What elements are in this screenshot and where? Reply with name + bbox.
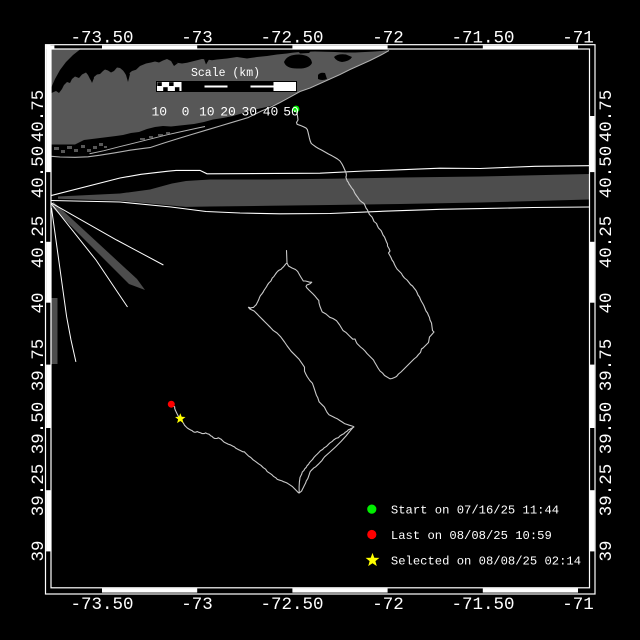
svg-text:20: 20: [220, 105, 236, 120]
svg-text:40: 40: [597, 292, 617, 313]
svg-text:39.50: 39.50: [597, 402, 617, 455]
svg-text:-71.50: -71.50: [451, 595, 514, 615]
svg-text:0: 0: [182, 105, 190, 120]
svg-text:-71: -71: [562, 29, 594, 49]
svg-text:-73: -73: [181, 595, 213, 615]
svg-text:39.50: 39.50: [29, 402, 49, 455]
svg-text:40.75: 40.75: [29, 90, 49, 143]
svg-text:-72: -72: [372, 595, 404, 615]
svg-text:-73.50: -73.50: [70, 595, 133, 615]
svg-text:39.25: 39.25: [597, 464, 617, 517]
svg-text:-71: -71: [562, 595, 594, 615]
svg-text:50: 50: [283, 105, 299, 120]
svg-text:10: 10: [199, 105, 215, 120]
svg-text:39: 39: [29, 540, 49, 561]
svg-text:40: 40: [29, 292, 49, 313]
svg-text:39: 39: [597, 540, 617, 561]
svg-text:-72: -72: [372, 29, 404, 49]
svg-text:-72.50: -72.50: [260, 595, 323, 615]
svg-text:39.75: 39.75: [29, 339, 49, 392]
svg-text:10: 10: [151, 105, 167, 120]
svg-text:39.25: 39.25: [29, 464, 49, 517]
svg-text:-73: -73: [181, 29, 213, 49]
svg-text:40.25: 40.25: [597, 216, 617, 269]
svg-text:39.75: 39.75: [597, 339, 617, 392]
svg-text:Start on 07/16/25 11:44: Start on 07/16/25 11:44: [391, 504, 559, 518]
svg-text:-72.50: -72.50: [260, 29, 323, 49]
svg-text:40.50: 40.50: [29, 146, 49, 199]
svg-text:-71.50: -71.50: [451, 29, 514, 49]
svg-text:Selected on 08/08/25 02:14: Selected on 08/08/25 02:14: [391, 554, 581, 568]
svg-text:Scale (km): Scale (km): [191, 67, 260, 80]
svg-text:30: 30: [241, 105, 257, 120]
svg-text:40.75: 40.75: [597, 90, 617, 143]
svg-text:40.50: 40.50: [597, 146, 617, 199]
svg-text:40.25: 40.25: [29, 216, 49, 269]
svg-text:40: 40: [263, 105, 279, 120]
svg-text:-73.50: -73.50: [70, 29, 133, 49]
svg-text:Last on 08/08/25 10:59: Last on 08/08/25 10:59: [391, 529, 552, 543]
